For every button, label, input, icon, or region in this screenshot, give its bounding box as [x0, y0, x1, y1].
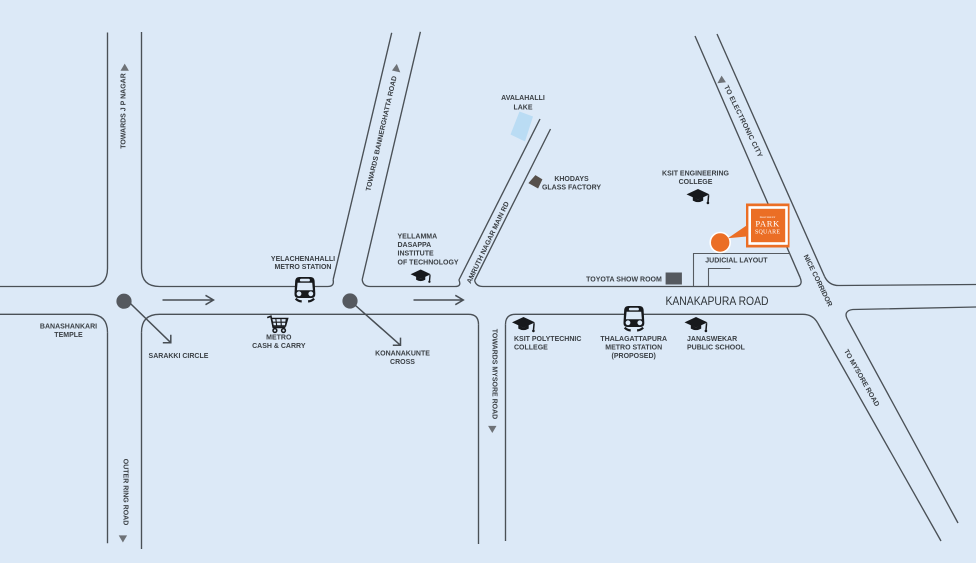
svg-text:KSIT POLYTECHNIC: KSIT POLYTECHNIC [514, 336, 581, 343]
svg-text:TOWARDS J P NAGAR: TOWARDS J P NAGAR [120, 73, 127, 149]
svg-text:JUDICIAL LAYOUT: JUDICIAL LAYOUT [705, 257, 768, 264]
svg-text:SARAKKI CIRCLE: SARAKKI CIRCLE [149, 353, 209, 360]
svg-text:PARK: PARK [755, 219, 780, 229]
svg-text:TOWARDS MYSORE ROAD: TOWARDS MYSORE ROAD [491, 329, 498, 420]
svg-text:KONANAKUNTE: KONANAKUNTE [375, 351, 430, 358]
svg-text:CROSS: CROSS [390, 359, 415, 366]
svg-text:YELACHENAHALLI: YELACHENAHALLI [271, 256, 335, 263]
svg-text:OF TECHNOLOGY: OF TECHNOLOGY [398, 259, 459, 266]
svg-text:PUBLIC SCHOOL: PUBLIC SCHOOL [687, 345, 746, 352]
svg-text:COLLEGE: COLLEGE [679, 179, 713, 186]
svg-text:KSIT ENGINEERING: KSIT ENGINEERING [662, 171, 729, 178]
svg-text:KANAKAPURA ROAD: KANAKAPURA ROAD [666, 294, 769, 308]
svg-text:KHODAYS: KHODAYS [554, 176, 589, 183]
svg-text:METRO: METRO [266, 335, 292, 342]
svg-text:LAKE: LAKE [513, 105, 532, 112]
svg-text:AVALAHALLI: AVALAHALLI [501, 95, 545, 102]
svg-text:OUTER RING ROAD: OUTER RING ROAD [122, 459, 129, 526]
svg-text:METRO STATION: METRO STATION [605, 345, 662, 352]
svg-text:TEMPLE: TEMPLE [54, 332, 83, 339]
svg-text:YELLAMMA: YELLAMMA [398, 233, 438, 240]
svg-text:TOYOTA SHOW ROOM: TOYOTA SHOW ROOM [586, 276, 662, 283]
svg-text:(PROPOSED): (PROPOSED) [612, 353, 656, 360]
svg-text:CASH & CARRY: CASH & CARRY [252, 343, 306, 350]
svg-text:GLASS FACTORY: GLASS FACTORY [542, 185, 601, 192]
svg-text:THALAGATTAPURA: THALAGATTAPURA [600, 336, 667, 343]
svg-text:INSTITUTE: INSTITUTE [398, 251, 434, 258]
svg-text:METRO STATION: METRO STATION [275, 264, 332, 271]
svg-text:SQUARE: SQUARE [755, 229, 780, 235]
svg-text:BANASHANKARI: BANASHANKARI [40, 324, 97, 331]
svg-text:JANASWEKAR: JANASWEKAR [687, 336, 737, 343]
svg-text:DASAPPA: DASAPPA [398, 242, 432, 249]
svg-text:COLLEGE: COLLEGE [514, 345, 548, 352]
